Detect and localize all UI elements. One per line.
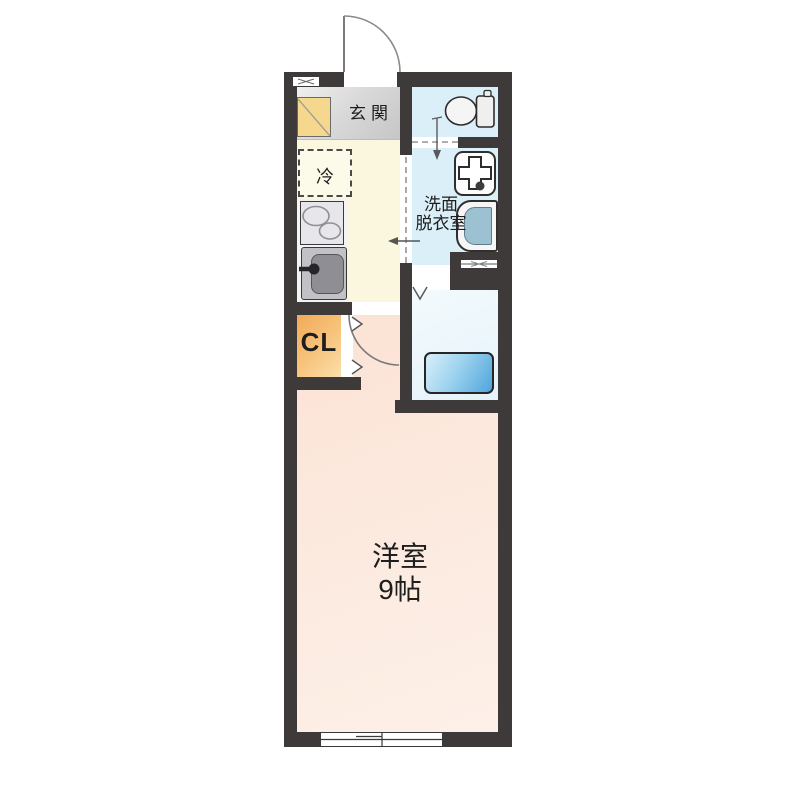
bathtub-icon (424, 352, 494, 394)
sink-basin (311, 254, 344, 294)
entrance-door-swing-arc (344, 16, 400, 72)
toilet-door-opening (412, 137, 458, 148)
main-room-label: 洋室 9帖 (337, 540, 463, 606)
washroom-label: 洗面 脱衣室 (408, 195, 474, 233)
wall-kitchen-room (297, 302, 352, 315)
wall-washroom-bathroom (450, 252, 498, 290)
room-door-opening (352, 302, 400, 315)
entrance-vent-window (292, 76, 320, 87)
bathroom-door-opening (412, 265, 450, 290)
floor-plan: 玄関 冷 洗面 脱衣室 CL 洋室 9帖 (0, 0, 800, 800)
shoe-cabinet (297, 97, 331, 137)
wall-bathroom-bottom (395, 400, 512, 413)
closet-label: CL (297, 327, 341, 358)
entrance-door-opening (344, 72, 397, 87)
washing-machine-pan-icon (454, 151, 496, 196)
bathroom-window (460, 259, 498, 269)
main-room-window (320, 732, 443, 747)
main-room-label-line2: 9帖 (337, 573, 463, 606)
entrance-label: 玄関 (340, 99, 402, 124)
toilet-room (412, 87, 498, 137)
stove-burners-icon (300, 201, 344, 245)
washroom-label-line1: 洗面 (408, 195, 474, 214)
closet-folding-door (341, 315, 353, 377)
refrigerator-label: 冷 (298, 163, 352, 189)
washroom-label-line2: 脱衣室 (408, 214, 474, 233)
main-room-label-line1: 洋室 (337, 540, 463, 573)
wall-left (284, 72, 297, 747)
wall-toilet-washroom (458, 137, 498, 148)
wall-right (498, 72, 512, 747)
floor-plan-page: { "plan": { "title": "1K apartment floor… (0, 0, 800, 800)
